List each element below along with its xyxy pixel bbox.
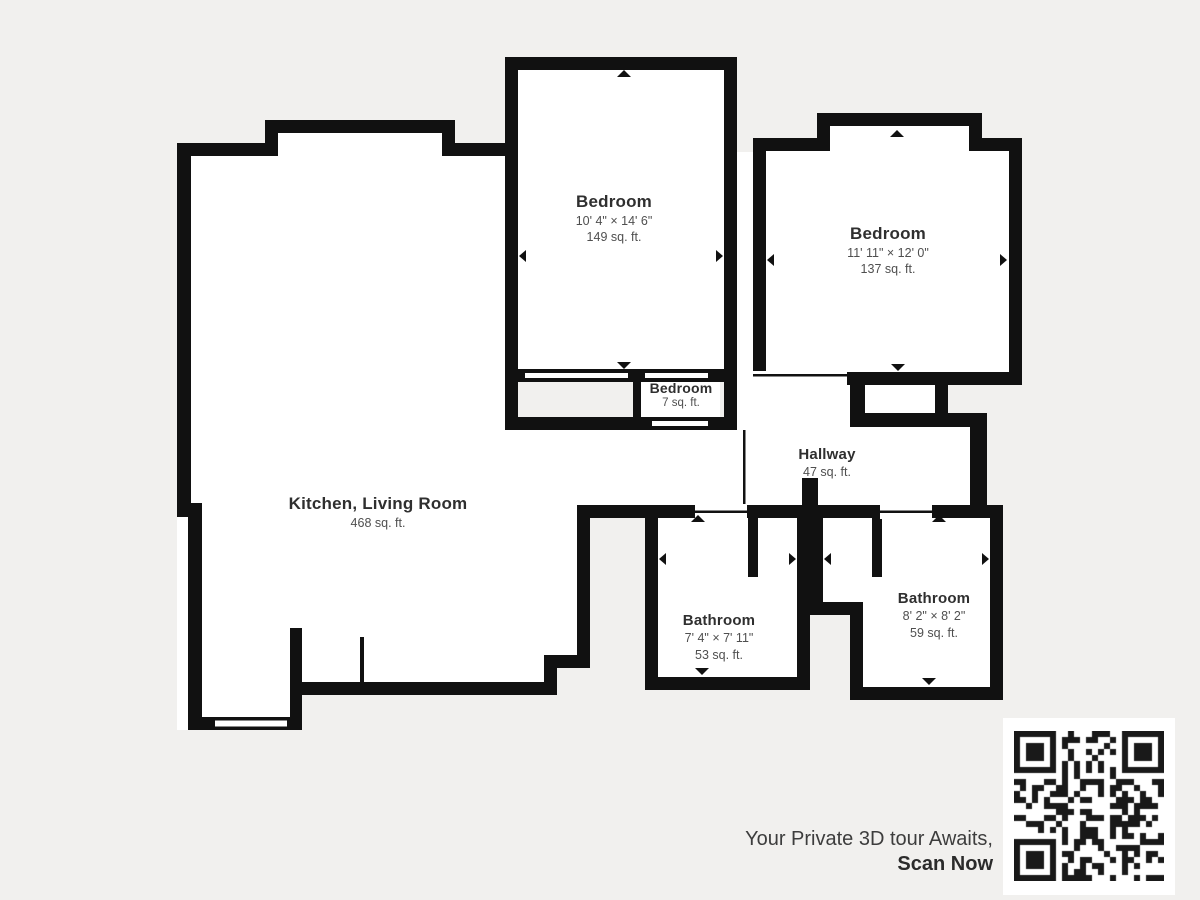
room-area: 149 sq. ft.: [576, 230, 653, 244]
room-dimensions: 11' 11" × 12' 0": [847, 246, 929, 260]
room-name: Bedroom: [576, 192, 653, 212]
room-name: Bedroom: [847, 224, 929, 244]
room-area: 53 sq. ft.: [683, 648, 755, 662]
room-area: 468 sq. ft.: [289, 516, 468, 530]
room-dimensions: 10' 4" × 14' 6": [576, 214, 653, 228]
room-name: Bathroom: [898, 590, 970, 607]
qr-code-tile: [1003, 718, 1175, 895]
room-label-kitchen-living: Kitchen, Living Room 468 sq. ft.: [289, 494, 468, 530]
floorplan-page: Bedroom 10' 4" × 14' 6" 149 sq. ft. Bedr…: [0, 0, 1200, 900]
room-area: 137 sq. ft.: [847, 262, 929, 276]
room-label-bedroom-top-right: Bedroom 11' 11" × 12' 0" 137 sq. ft.: [847, 224, 929, 276]
room-dimensions: 8' 2" × 8' 2": [898, 609, 970, 623]
room-name: Hallway: [798, 446, 855, 463]
room-area: 47 sq. ft.: [798, 465, 855, 479]
cta-caption: Your Private 3D tour Awaits, Scan Now: [745, 828, 993, 876]
cta-line2: Scan Now: [745, 853, 993, 876]
room-area: 7 sq. ft.: [650, 397, 713, 410]
room-label-bedroom-small: Bedroom 7 sq. ft.: [650, 380, 713, 410]
room-label-bathroom-left: Bathroom 7' 4" × 7' 11" 53 sq. ft.: [683, 612, 755, 662]
exterior-notch: [518, 382, 633, 417]
room-label-bathroom-right: Bathroom 8' 2" × 8' 2" 59 sq. ft.: [898, 590, 970, 640]
room-name: Kitchen, Living Room: [289, 494, 468, 514]
room-label-bedroom-top-middle: Bedroom 10' 4" × 14' 6" 149 sq. ft.: [576, 192, 653, 244]
cta-line1: Your Private 3D tour Awaits,: [745, 828, 993, 851]
room-dimensions: 7' 4" × 7' 11": [683, 631, 755, 645]
room-area: 59 sq. ft.: [898, 626, 970, 640]
room-name: Bedroom: [650, 380, 713, 396]
qr-code: [1014, 731, 1164, 881]
room-name: Bathroom: [683, 612, 755, 629]
room-label-hallway: Hallway 47 sq. ft.: [798, 446, 855, 480]
